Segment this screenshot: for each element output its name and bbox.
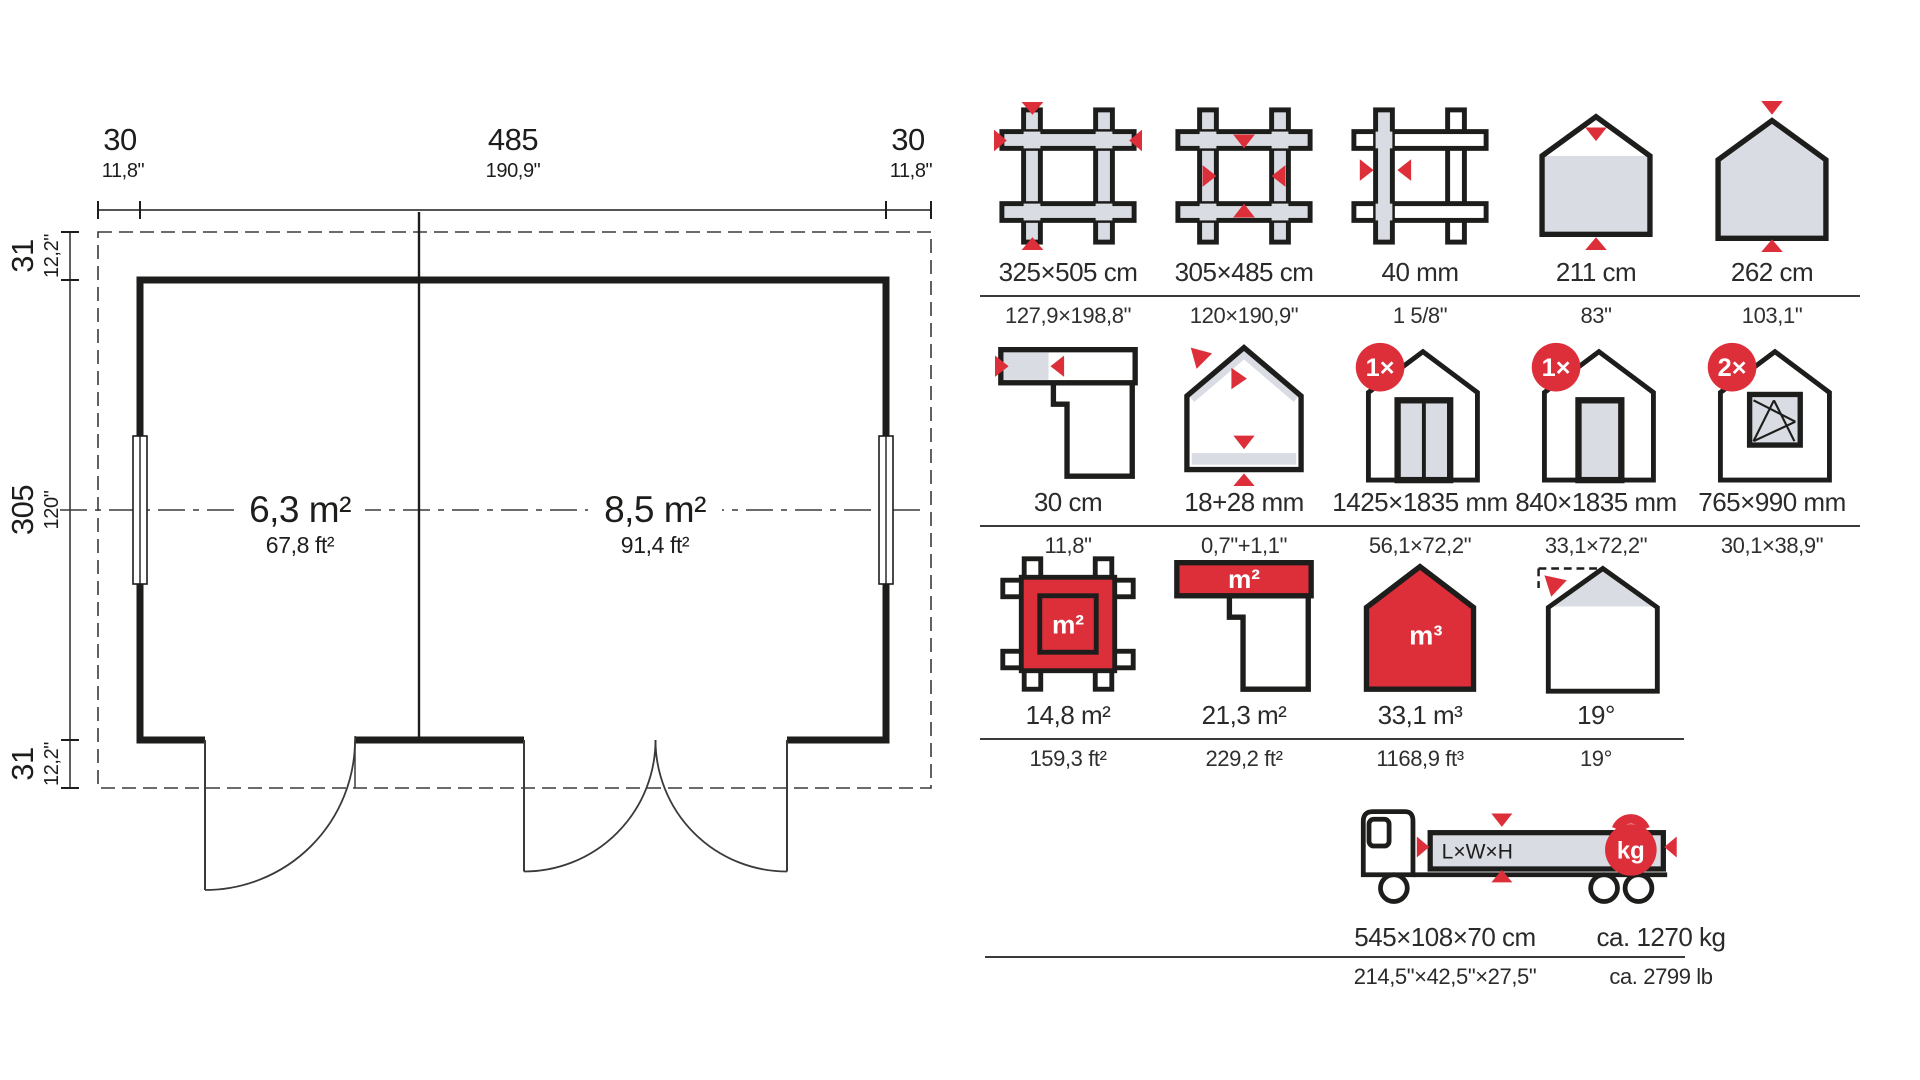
log-frame-inner-size-icon xyxy=(1156,95,1332,257)
unit-label: m² xyxy=(1228,564,1260,594)
row-separator xyxy=(985,956,1685,958)
transport-size-imperial: 214,5"×42,5"×27,5" xyxy=(1320,964,1570,990)
dim-top-right-cm: 30 xyxy=(891,122,925,157)
spec-metric: 1425×1835 mm xyxy=(1332,487,1508,523)
spec-imperial: 30,1×38,9" xyxy=(1684,527,1860,559)
door-opening-single xyxy=(205,731,355,749)
log-frame-outer-size-icon xyxy=(980,95,1156,257)
dim-top-mid-cm: 485 xyxy=(488,122,538,157)
roof-floor-thickness-icon xyxy=(1156,335,1332,487)
dimension-top xyxy=(98,201,931,219)
dim-left-mid-in: 120" xyxy=(41,490,63,529)
room-area-sublabel-1: 67,8 ft² xyxy=(266,532,335,558)
spec-metric: 14,8 m² xyxy=(980,700,1156,736)
spec-metric: 40 mm xyxy=(1332,257,1508,293)
spec-metric: 30 cm xyxy=(980,487,1156,523)
truck-icon: L×W×H kg xyxy=(1348,775,1692,919)
spec-metric: 19° xyxy=(1508,700,1684,736)
dim-left-top-in: 12,2" xyxy=(41,234,63,278)
dim-left-bottom-cm: 31 xyxy=(5,747,40,780)
spec-row-3: m² m² m³ xyxy=(980,548,1684,772)
weight-kettlebell-icon: kg xyxy=(1605,819,1657,876)
spec-imperial: 229,2 ft² xyxy=(1156,740,1332,772)
spec-imperial: 159,3 ft² xyxy=(980,740,1156,772)
roof-pitch-icon xyxy=(1508,548,1684,700)
spec-imperial: 19° xyxy=(1508,740,1684,772)
spec-metric: 262 cm xyxy=(1684,257,1860,293)
floor-plan: 30 11,8" 485 190,9" 30 11,8" 31 12,2" 30… xyxy=(0,0,960,1080)
spec-imperial: 120×190,9" xyxy=(1156,297,1332,329)
double-door-icon: 1× xyxy=(1332,335,1508,487)
room-area-sublabel-2: 91,4 ft² xyxy=(621,532,690,558)
spec-imperial: 127,9×198,8" xyxy=(980,297,1156,329)
spec-metric: 33,1 m³ xyxy=(1332,700,1508,736)
dim-left-mid-cm: 305 xyxy=(5,485,40,535)
door-single xyxy=(205,740,355,890)
spec-row-1: 325×505 cm 305×485 cm 40 mm 211 cm 262 c… xyxy=(980,95,1860,329)
spec-imperial: 103,1" xyxy=(1684,297,1860,329)
spec-imperial: 1 5/8" xyxy=(1332,297,1508,329)
dim-top-mid-in: 190,9" xyxy=(486,160,541,182)
spec-imperial: 83" xyxy=(1508,297,1684,329)
badge-text: 1× xyxy=(1542,354,1571,382)
eaves-height-icon xyxy=(1508,95,1684,257)
transport-weight-metric: ca. 1270 kg xyxy=(1576,922,1746,953)
transport-weight-imperial: ca. 2799 lb xyxy=(1576,964,1746,990)
door-double xyxy=(524,740,787,872)
wall-thickness-icon xyxy=(1332,95,1508,257)
window-right xyxy=(879,436,893,584)
window-left xyxy=(133,436,147,584)
transport-size-metric: 545×108×70 cm xyxy=(1320,922,1570,953)
spec-metric: 305×485 cm xyxy=(1156,257,1332,293)
weight-badge-text: kg xyxy=(1617,837,1645,864)
spec-metric: 21,3 m² xyxy=(1156,700,1332,736)
dim-left-top-cm: 31 xyxy=(5,239,40,272)
window-icon: 2× xyxy=(1684,335,1860,487)
dim-left-bottom-in: 12,2" xyxy=(41,742,63,786)
roof-area-icon: m² xyxy=(1156,548,1332,700)
dim-top-left-in: 11,8" xyxy=(102,160,145,182)
ridge-height-icon xyxy=(1684,95,1860,257)
floor-area-icon: m² xyxy=(980,548,1156,700)
spec-row-2: 1× 1× 2× 30 cm 1 xyxy=(980,335,1860,559)
single-door-icon: 1× xyxy=(1508,335,1684,487)
dim-top-right-in: 11,8" xyxy=(890,160,933,182)
badge-text: 2× xyxy=(1718,354,1747,382)
badge-text: 1× xyxy=(1366,354,1395,382)
unit-label: m² xyxy=(1052,610,1084,640)
spec-metric: 325×505 cm xyxy=(980,257,1156,293)
room-area-label-2: 8,5 m² xyxy=(604,489,706,530)
spec-metric: 211 cm xyxy=(1508,257,1684,293)
spec-metric: 765×990 mm xyxy=(1684,487,1860,523)
spec-imperial: 1168,9 ft³ xyxy=(1332,740,1508,772)
room-area-label-1: 6,3 m² xyxy=(249,489,351,530)
dim-top-left-cm: 30 xyxy=(103,122,137,157)
unit-label: m³ xyxy=(1409,619,1442,650)
cargo-label: L×W×H xyxy=(1442,840,1513,863)
volume-icon: m³ xyxy=(1332,548,1508,700)
spec-metric: 840×1835 mm xyxy=(1508,487,1684,523)
spec-metric: 18+28 mm xyxy=(1156,487,1332,523)
roof-overhang-icon xyxy=(980,335,1156,487)
